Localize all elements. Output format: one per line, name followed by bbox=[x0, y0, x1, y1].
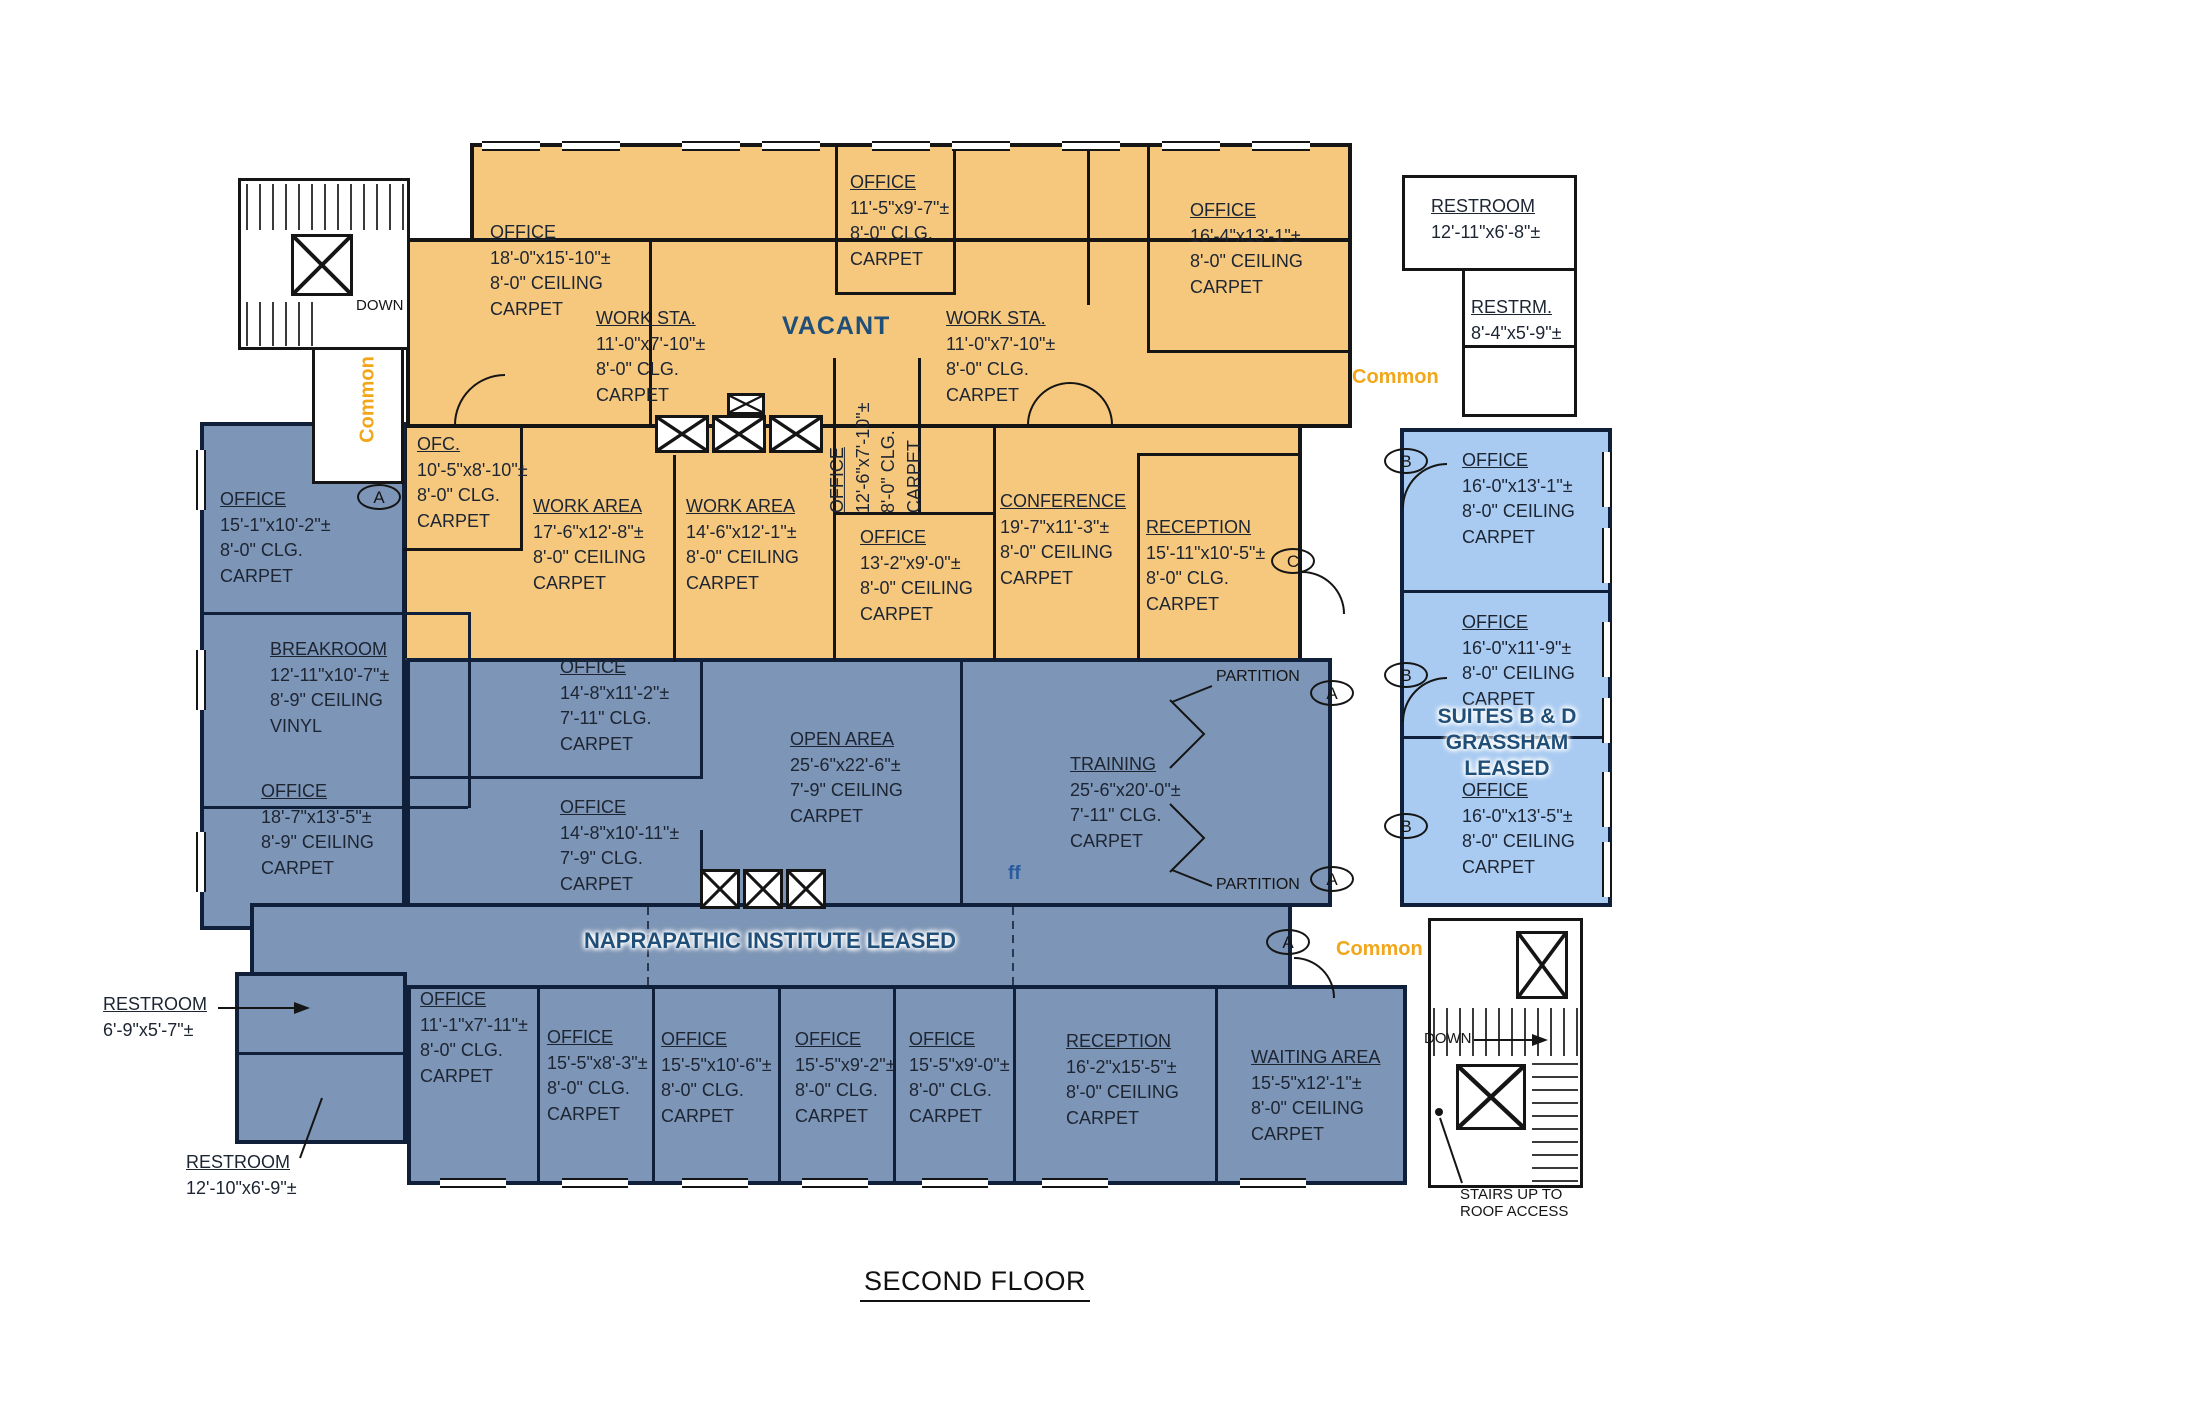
wall-segment bbox=[1137, 453, 1302, 456]
wall-segment bbox=[1147, 350, 1352, 353]
elevator-shaft bbox=[291, 234, 353, 296]
window-segment bbox=[196, 832, 206, 892]
window-segment bbox=[196, 650, 206, 710]
window-segment bbox=[922, 1178, 988, 1188]
room-label: BREAKROOM12'-11"x10'-7"±8'-9" CEILINGVIN… bbox=[270, 637, 389, 739]
room-label: OFFICE15'-5"x9'-0"±8'-0" CLG.CARPET bbox=[909, 1027, 1010, 1129]
window-segment bbox=[682, 1178, 748, 1188]
wall-segment bbox=[1215, 985, 1218, 1185]
window-segment bbox=[872, 141, 930, 151]
wall-segment bbox=[960, 660, 963, 907]
room-label: RESTRM.8'-4"x5'-9"± bbox=[1471, 295, 1562, 346]
room-label: RESTROOM6'-9"x5'-7"± bbox=[103, 992, 207, 1043]
room-label: WORK STA.11'-0"x7'-10"±8'-0" CLG.CARPET bbox=[946, 306, 1055, 408]
room-label: WORK AREA17'-6"x12'-8"±8'-0" CEILINGCARP… bbox=[533, 494, 646, 596]
wall-segment bbox=[835, 292, 956, 295]
zone-title-vacant: VACANT bbox=[782, 312, 890, 341]
zone-title-naprapathic: NAPRAPATHIC INSTITUTE LEASED bbox=[580, 928, 960, 954]
wall-segment bbox=[673, 455, 676, 662]
room-label: OFFICE11'-1"x7'-11"±8'-0" CLG.CARPET bbox=[420, 987, 528, 1089]
room-label: RESTROOM12'-11"x6'-8"± bbox=[1431, 194, 1540, 245]
wall-segment bbox=[652, 985, 655, 1185]
stair-treads bbox=[246, 184, 404, 230]
shaft-box bbox=[727, 393, 765, 415]
window-segment bbox=[1042, 1178, 1108, 1188]
keynote-marker-b: B bbox=[1384, 662, 1428, 688]
room-label: OFFICE14'-8"x10'-11"±7'-9" CLG.CARPET bbox=[560, 795, 679, 897]
room-label: OFFICE18'-0"x15'-10"±8'-0" CEILINGCARPET bbox=[490, 220, 611, 322]
down-label: DOWN bbox=[356, 297, 404, 314]
window-segment bbox=[196, 450, 206, 510]
room-label: OFC.10'-5"x8'-10"±8'-0" CLG.CARPET bbox=[417, 432, 528, 534]
wall-segment bbox=[953, 145, 956, 295]
room-label: RECEPTION15'-11"x10'-5"±8'-0" CLG.CARPET bbox=[1146, 515, 1265, 617]
room-label: OFFICE14'-8"x11'-2"±7'-11" CLG.CARPET bbox=[560, 655, 669, 757]
room-label: OFFICE16'-0"x11'-9"±8'-0" CEILINGCARPET bbox=[1462, 610, 1575, 712]
wall-segment bbox=[1147, 145, 1150, 353]
wall-segment bbox=[993, 425, 996, 660]
shaft-box bbox=[655, 415, 709, 453]
zone-title-suites: SUITES B & D GRASSHAM LEASED bbox=[1418, 704, 1596, 781]
common-corridor-label: Common bbox=[1336, 938, 1423, 961]
room-label: OFFICE15'-5"x10'-6"±8'-0" CLG.CARPET bbox=[661, 1027, 772, 1129]
shaft-box bbox=[743, 869, 783, 909]
room-label: OFFICE15'-1"x10'-2"±8'-0" CLG.CARPET bbox=[220, 487, 331, 589]
shaft-box bbox=[769, 415, 823, 453]
room-label: OFFICE18'-7"x13'-5"±8'-9" CEILINGCARPET bbox=[261, 779, 374, 881]
down-label: DOWN bbox=[1424, 1030, 1472, 1047]
wall-segment bbox=[1400, 590, 1612, 593]
window-segment bbox=[562, 1178, 628, 1188]
keynote-marker-c: C bbox=[1271, 548, 1315, 574]
keynote-marker-a: A bbox=[1266, 929, 1310, 955]
window-segment bbox=[1162, 141, 1220, 151]
window-segment bbox=[952, 141, 1010, 151]
window-segment bbox=[1602, 698, 1612, 743]
partition-label: PARTITION bbox=[1216, 668, 1300, 686]
window-segment bbox=[1602, 452, 1612, 507]
room-label: RESTROOM12'-10"x6'-9"± bbox=[186, 1150, 297, 1201]
shaft-box bbox=[700, 869, 740, 909]
wall-segment bbox=[778, 985, 781, 1185]
room-label-rotated: OFFICE12'-6"x7'-10"±8'-0" CLG.CARPET bbox=[825, 363, 927, 513]
wall-segment bbox=[406, 776, 703, 779]
room-label: OFFICE16'-0"x13'-1"±8'-0" CEILINGCARPET bbox=[1462, 448, 1575, 550]
room-label: OFFICE16'-0"x13'-5"±8'-0" CEILINGCARPET bbox=[1462, 778, 1575, 880]
window-segment bbox=[1602, 772, 1612, 827]
wall-segment bbox=[1087, 145, 1090, 305]
keynote-marker-a: A bbox=[1310, 680, 1354, 706]
window-segment bbox=[1602, 842, 1612, 897]
elevator-shaft bbox=[1456, 1064, 1526, 1130]
floor-plan-canvas: OFFICE18'-0"x15'-10"±8'-0" CEILINGCARPET… bbox=[0, 0, 2205, 1426]
room-label: OFFICE11'-5"x9'-7"±8'-0" CLG.CARPET bbox=[850, 170, 949, 272]
room-label: OFFICE16'-4"x13'-1"±8'-0" CEILINGCARPET bbox=[1190, 198, 1303, 300]
window-segment bbox=[1602, 622, 1612, 677]
window-segment bbox=[1602, 528, 1612, 583]
room-label: WORK AREA14'-6"x12'-1"±8'-0" CEILINGCARP… bbox=[686, 494, 799, 596]
room-label: CONFERENCE19'-7"x11'-3"±8'-0" CEILINGCAR… bbox=[1000, 489, 1126, 591]
keynote-marker-b: B bbox=[1384, 448, 1428, 474]
window-segment bbox=[562, 141, 620, 151]
shaft-box bbox=[712, 415, 766, 453]
room-label: OPEN AREA25'-6"x22'-6"±7'-9" CEILINGCARP… bbox=[790, 727, 903, 829]
wall-segment bbox=[403, 548, 523, 551]
partition-label: PARTITION bbox=[1216, 876, 1300, 894]
window-segment bbox=[482, 141, 540, 151]
common-corridor-label: Common bbox=[357, 350, 380, 450]
room-label: TRAINING25'-6"x20'-0"±7'-11" CLG.CARPET bbox=[1070, 752, 1181, 854]
keynote-marker-b: B bbox=[1384, 813, 1428, 839]
wall-segment bbox=[1013, 985, 1016, 1185]
wall-segment bbox=[1137, 453, 1140, 660]
window-segment bbox=[802, 1178, 868, 1188]
room-label: OFFICE15'-5"x8'-3"±8'-0" CLG.CARPET bbox=[547, 1025, 648, 1127]
ff-note: ff bbox=[1008, 863, 1021, 885]
keynote-marker-a: A bbox=[1310, 866, 1354, 892]
drawing-title: SECOND FLOOR bbox=[860, 1266, 1090, 1302]
stair-treads bbox=[1532, 1060, 1578, 1182]
room-label: RECEPTION16'-2"x15'-5"±8'-0" CEILINGCARP… bbox=[1066, 1029, 1179, 1131]
window-segment bbox=[762, 141, 820, 151]
room-label: WAITING AREA15'-5"x12'-1"±8'-0" CEILINGC… bbox=[1251, 1045, 1380, 1147]
storage-top-right bbox=[1462, 345, 1577, 417]
room-label: WORK STA.11'-0"x7'-10"±8'-0" CLG.CARPET bbox=[596, 306, 705, 408]
wall-segment bbox=[238, 1052, 404, 1055]
window-segment bbox=[1240, 1178, 1306, 1188]
wall-segment bbox=[537, 985, 540, 1185]
zone-naprapathic-restroom-block bbox=[235, 972, 407, 1144]
room-label: OFFICE13'-2"x9'-0"±8'-0" CEILINGCARPET bbox=[860, 525, 973, 627]
wall-segment bbox=[835, 145, 838, 295]
elevator-shaft bbox=[1516, 931, 1568, 999]
stairs-roof-note: STAIRS UP TO ROOF ACCESS bbox=[1460, 1186, 1568, 1220]
common-corridor-label: Common bbox=[1352, 366, 1439, 389]
room-label: OFFICE15'-5"x9'-2"±8'-0" CLG.CARPET bbox=[795, 1027, 896, 1129]
wall-segment bbox=[700, 660, 703, 778]
window-segment bbox=[440, 1178, 506, 1188]
shaft-box bbox=[786, 869, 826, 909]
window-segment bbox=[1252, 141, 1310, 151]
keynote-marker-a: A bbox=[357, 484, 401, 510]
window-segment bbox=[682, 141, 740, 151]
stair-treads bbox=[246, 302, 314, 346]
window-segment bbox=[1062, 141, 1120, 151]
wall-segment bbox=[200, 612, 468, 615]
